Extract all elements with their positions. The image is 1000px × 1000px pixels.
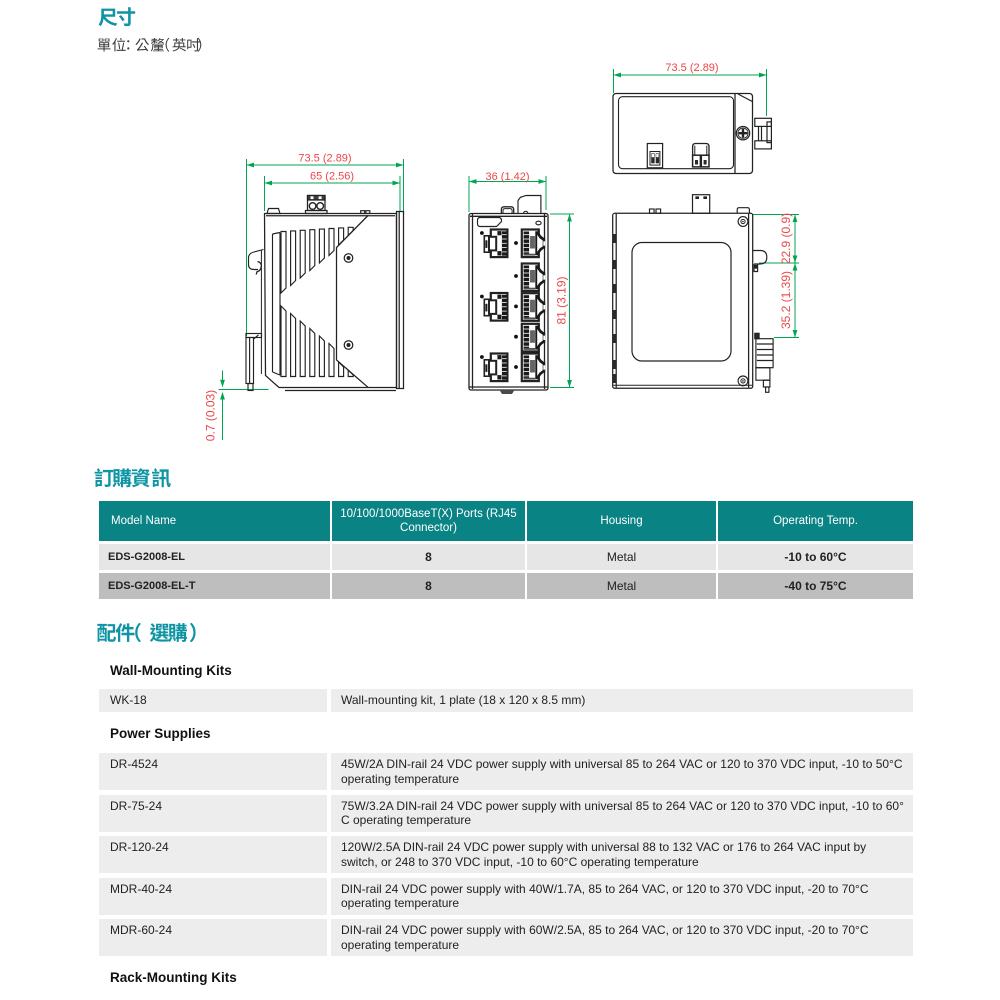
svg-text:22.9 (0.9): 22.9 (0.9) [779,213,793,264]
svg-text:81 (3.19): 81 (3.19) [555,276,569,324]
svg-text:73.5 (2.89): 73.5 (2.89) [665,62,718,74]
svg-text:0.7 (0.03): 0.7 (0.03) [204,390,218,441]
svg-text:36 (1.42): 36 (1.42) [485,171,529,183]
svg-text:65 (2.56): 65 (2.56) [310,171,354,183]
svg-text:35.2 (1.39): 35.2 (1.39) [779,271,793,329]
svg-text:73.5 (2.89): 73.5 (2.89) [298,153,351,165]
